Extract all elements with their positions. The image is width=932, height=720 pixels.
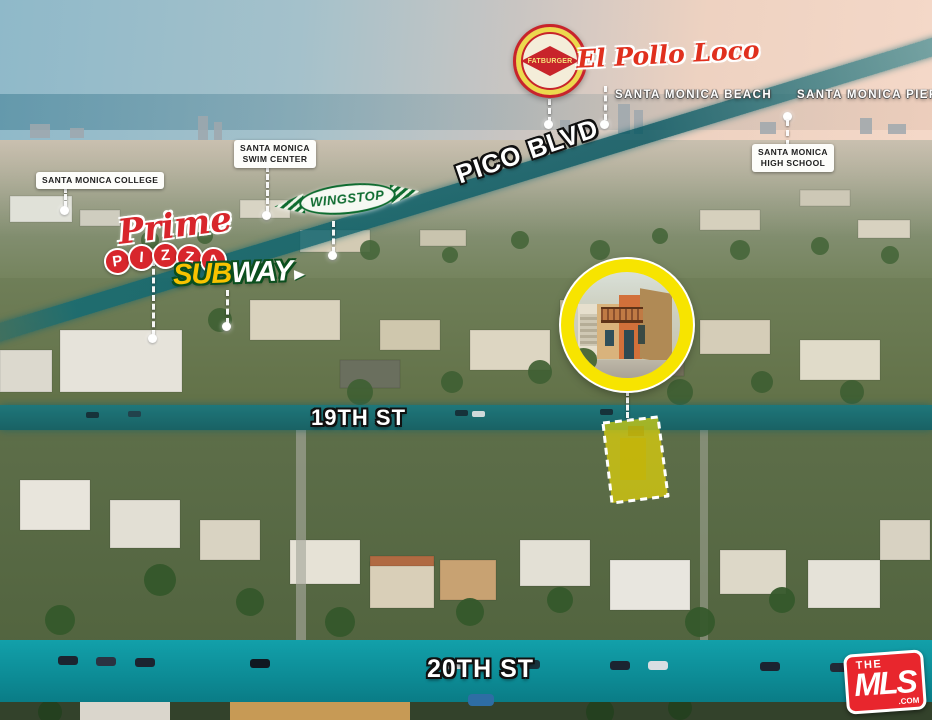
aerial-listing-photo: SANTA MONICA COLLEGE SANTA MONICA SWIM C… xyxy=(0,0,932,720)
fatburger-logo-icon: FATBURGER xyxy=(513,24,587,98)
high-school-line1: SANTA MONICA xyxy=(758,147,828,158)
subway-location-dot xyxy=(222,322,231,331)
swim-center-leader-line xyxy=(266,166,269,212)
pollo-loco-location-dot xyxy=(600,120,609,129)
wingstop-wordmark: WINGSTOP xyxy=(309,187,385,210)
wingstop-leader-line xyxy=(332,221,335,253)
prime-pizza-leader-line xyxy=(152,260,155,336)
inset-window xyxy=(638,325,645,344)
mls-com-text: .COM xyxy=(898,696,919,706)
swim-center-line2: SWIM CENTER xyxy=(240,154,310,165)
subway-sub-text: SUB xyxy=(172,257,231,291)
high-school-line2: HIGH SCHOOL xyxy=(758,158,828,169)
high-school-label: SANTA MONICA HIGH SCHOOL xyxy=(752,144,834,172)
inset-stairs xyxy=(580,314,597,346)
prime-pizza-location-dot xyxy=(148,334,157,343)
beach-label: SANTA MONICA BEACH xyxy=(615,89,772,101)
college-label: SANTA MONICA COLLEGE xyxy=(36,172,164,189)
college-location-dot xyxy=(60,206,69,215)
inset-window xyxy=(605,330,615,346)
inset-wood-balcony xyxy=(601,307,643,323)
property-inset-circle xyxy=(561,259,693,391)
swim-center-label: SANTA MONICA SWIM CENTER xyxy=(234,140,316,168)
twentieth-st-label: 20TH ST xyxy=(427,655,534,684)
property-parcel-highlight xyxy=(588,406,684,514)
subway-arrow-icon xyxy=(294,270,305,280)
fatburger-diamond: FATBURGER xyxy=(521,46,579,76)
property-leader-line xyxy=(626,390,629,418)
pollo-loco-leader-line xyxy=(604,86,607,120)
swim-center-line1: SANTA MONICA xyxy=(240,143,310,154)
high-school-leader-line xyxy=(786,120,789,146)
the-mls-logo: THE MLS .COM xyxy=(843,649,927,714)
street-cars xyxy=(0,0,932,720)
subway-way-text: WAY xyxy=(231,255,293,289)
pier-label: SANTA MONICA PIER xyxy=(797,89,932,101)
inset-door xyxy=(624,330,635,359)
subway-leader-line xyxy=(226,290,229,324)
fatburger-wordmark: FATBURGER xyxy=(528,58,573,65)
college-leader-line xyxy=(64,187,67,207)
wingstop-location-dot xyxy=(328,251,337,260)
swim-center-location-dot xyxy=(262,211,271,220)
property-inset-photo xyxy=(574,272,680,378)
subway-logo-icon: SUBWAY xyxy=(172,255,305,293)
nineteenth-st-label: 19TH ST xyxy=(311,405,406,431)
college-label-text: SANTA MONICA COLLEGE xyxy=(42,175,158,185)
